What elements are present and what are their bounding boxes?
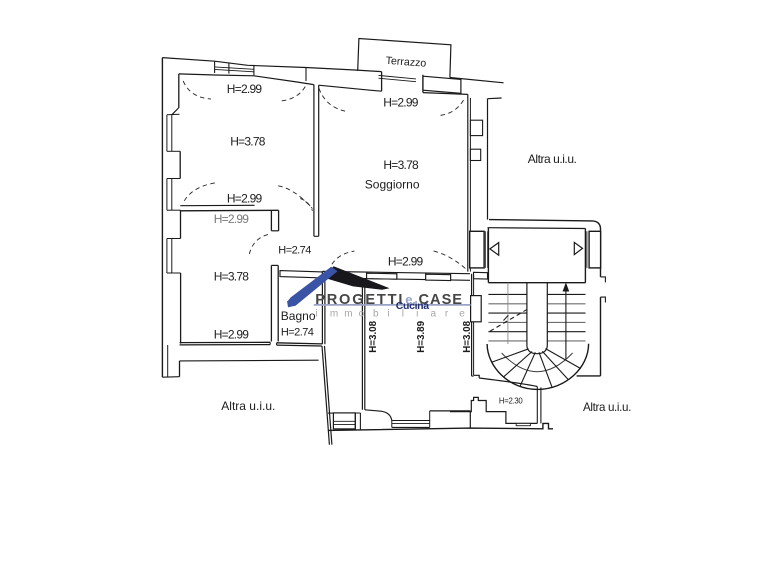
svg-text:i: i	[387, 309, 389, 320]
svg-text:o: o	[359, 309, 365, 320]
svg-text:H=3.08: H=3.08	[368, 320, 379, 352]
svg-text:H=2.99: H=2.99	[388, 254, 424, 268]
svg-text:Altra u.i.u.: Altra u.i.u.	[583, 401, 631, 414]
svg-text:Altra u.i.u.: Altra u.i.u.	[528, 152, 577, 166]
svg-text:H=3.78: H=3.78	[383, 158, 419, 172]
svg-text:b: b	[373, 309, 379, 320]
svg-text:H=2.99: H=2.99	[214, 212, 250, 226]
svg-text:Bagno: Bagno	[281, 309, 316, 323]
svg-text:H=3.89: H=3.89	[416, 320, 427, 352]
svg-text:H=2.30: H=2.30	[499, 396, 524, 405]
svg-text:i: i	[416, 309, 418, 320]
svg-text:Altra u.i.u.: Altra u.i.u.	[221, 399, 275, 413]
svg-text:H=3.08: H=3.08	[462, 320, 473, 352]
svg-text:H=2.99: H=2.99	[227, 191, 263, 205]
svg-text:H=2.74: H=2.74	[281, 326, 314, 338]
svg-text:m: m	[330, 309, 338, 320]
svg-text:i: i	[316, 309, 318, 320]
svg-text:Soggiorno: Soggiorno	[365, 178, 420, 192]
svg-text:H=3.78: H=3.78	[230, 134, 266, 148]
svg-text:a: a	[430, 309, 436, 320]
svg-text:H=3.78: H=3.78	[214, 270, 250, 284]
svg-text:m: m	[344, 309, 352, 320]
svg-text:H=2.99: H=2.99	[383, 95, 419, 109]
svg-text:e: e	[459, 309, 465, 320]
svg-text:H=2.99: H=2.99	[214, 327, 250, 341]
svg-text:H=2.74: H=2.74	[278, 245, 311, 257]
svg-text:l: l	[402, 309, 404, 320]
svg-text:H=2.99: H=2.99	[227, 82, 263, 96]
